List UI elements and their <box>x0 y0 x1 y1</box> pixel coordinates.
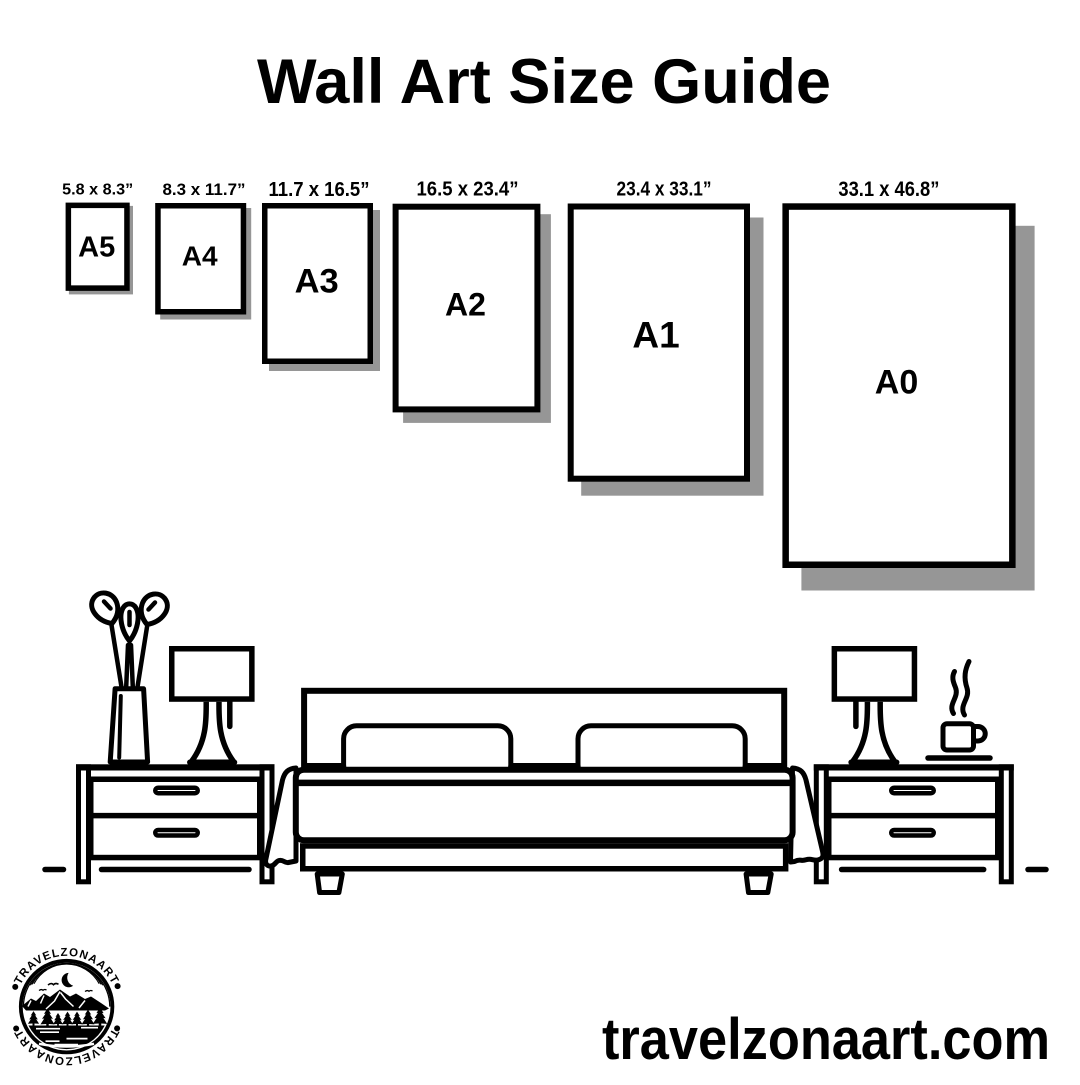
svg-text:5.8 x 8.3”: 5.8 x 8.3” <box>62 182 133 199</box>
svg-text:11.7 x 16.5”: 11.7 x 16.5” <box>269 179 370 201</box>
svg-text:8.3 x 11.7”: 8.3 x 11.7” <box>163 181 246 199</box>
svg-text:A5: A5 <box>78 232 115 264</box>
svg-text:A4: A4 <box>182 241 218 272</box>
svg-text:A2: A2 <box>445 287 486 323</box>
svg-text:16.5 x 23.4”: 16.5 x 23.4” <box>417 179 519 201</box>
svg-text:Wall Art Size Guide: Wall Art Size Guide <box>257 47 831 117</box>
svg-text:23.4 x 33.1”: 23.4 x 33.1” <box>617 179 712 201</box>
svg-text:A0: A0 <box>875 364 918 402</box>
svg-text:33.1 x 46.8”: 33.1 x 46.8” <box>838 178 939 201</box>
svg-text:travelzonaart.com: travelzonaart.com <box>602 1007 1050 1072</box>
svg-text:A1: A1 <box>632 314 679 355</box>
svg-text:A3: A3 <box>295 263 339 301</box>
